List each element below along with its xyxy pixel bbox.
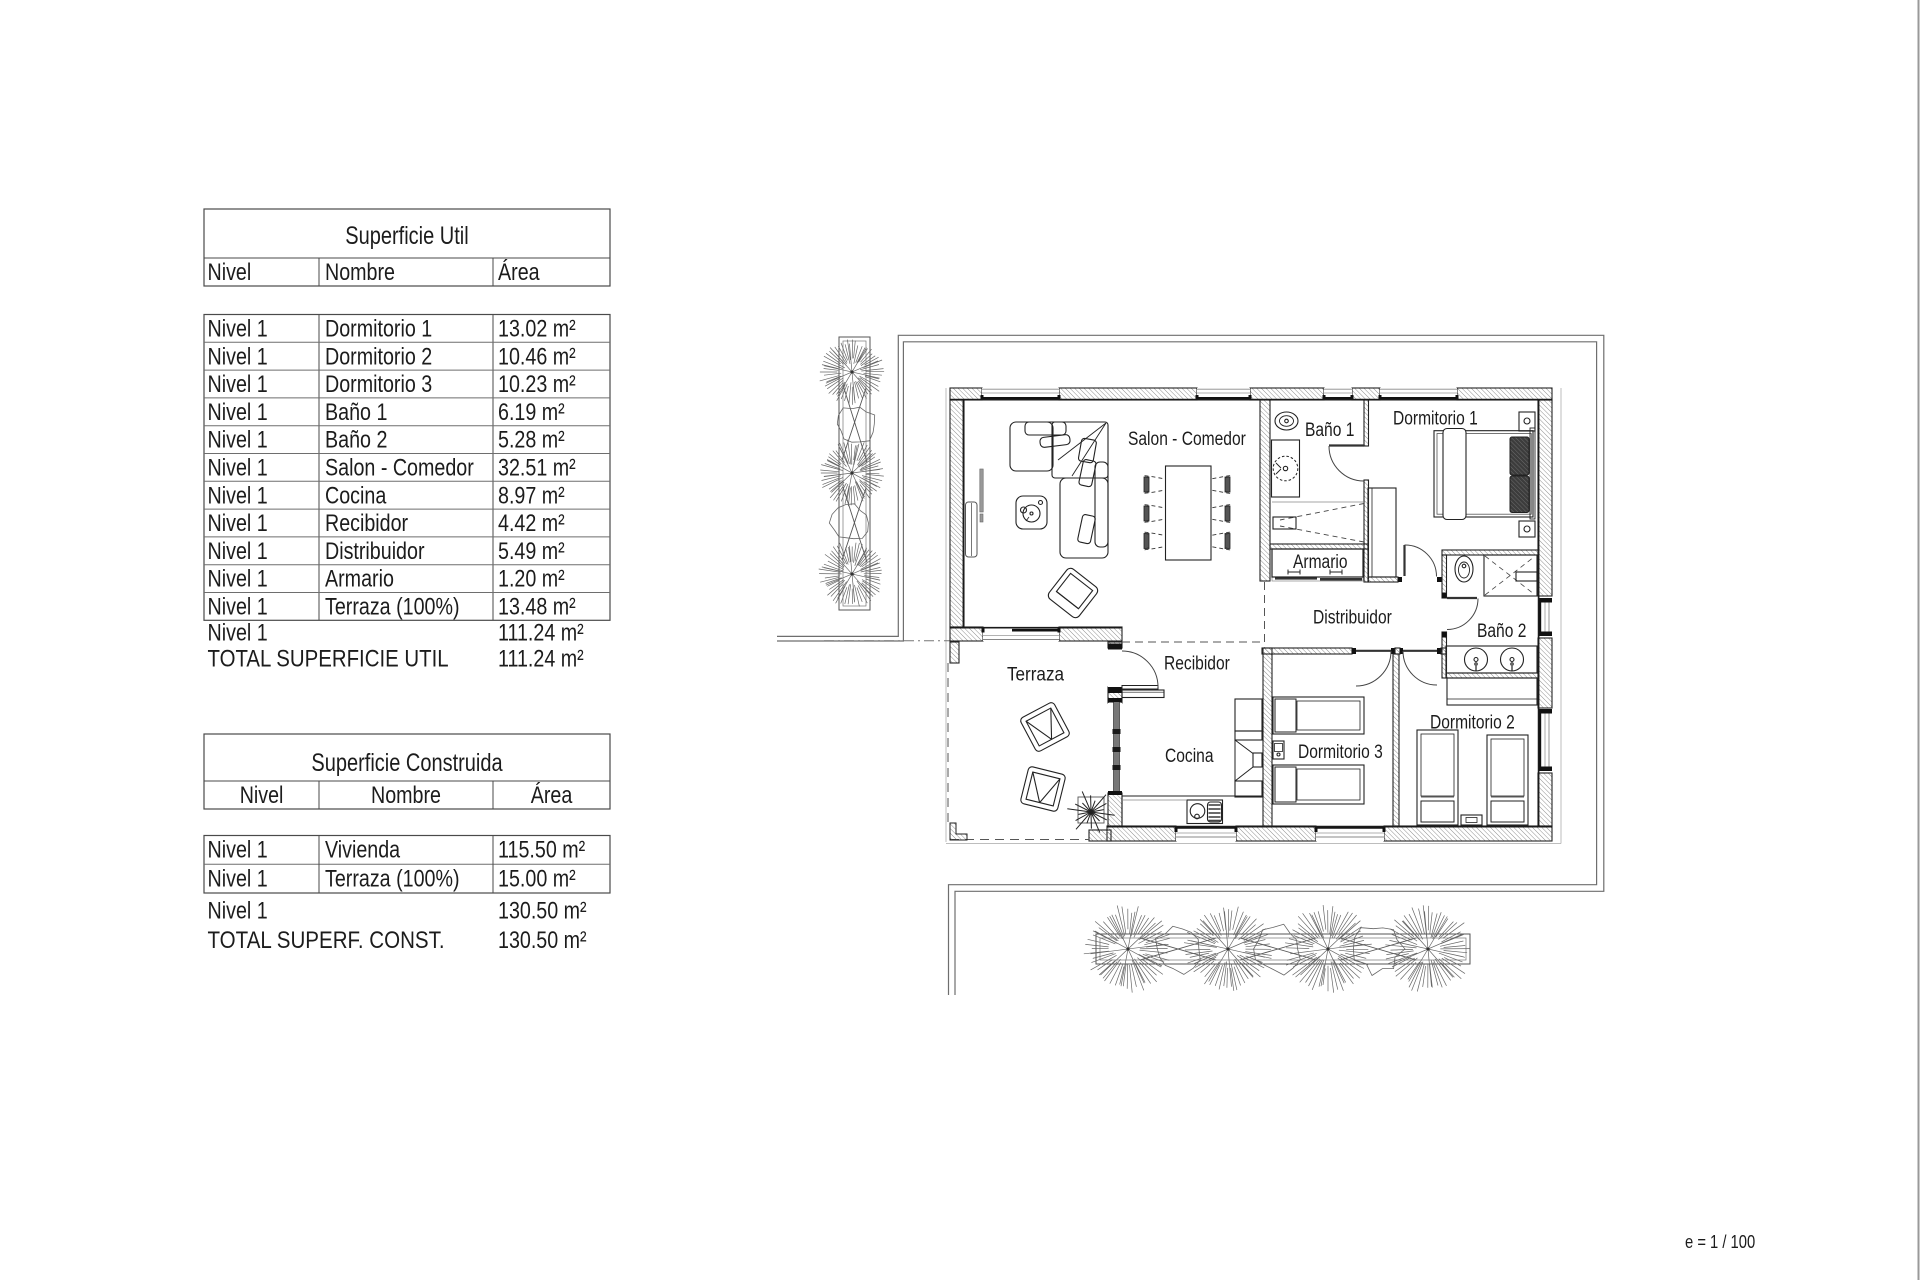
svg-text:13.02 m²: 13.02 m²: [498, 316, 576, 343]
svg-text:Nivel 1: Nivel 1: [208, 620, 268, 647]
svg-text:Salon - Comedor: Salon - Comedor: [1128, 429, 1246, 450]
svg-text:Superficie Util: Superficie Util: [345, 222, 468, 250]
svg-text:Baño 2: Baño 2: [325, 427, 387, 454]
svg-text:TOTAL SUPERF. CONST.: TOTAL SUPERF. CONST.: [208, 927, 445, 954]
svg-text:Área: Área: [531, 782, 573, 809]
svg-text:10.46 m²: 10.46 m²: [498, 343, 576, 370]
svg-text:Nivel 1: Nivel 1: [208, 455, 268, 482]
svg-text:Terraza (100%): Terraza (100%): [325, 865, 460, 892]
svg-text:111.24 m²: 111.24 m²: [498, 620, 584, 647]
svg-text:Vivienda: Vivienda: [325, 837, 401, 864]
svg-text:Dormitorio 3: Dormitorio 3: [1298, 742, 1383, 763]
svg-text:Recibidor: Recibidor: [325, 510, 408, 537]
svg-text:Distribuidor: Distribuidor: [325, 538, 425, 565]
svg-text:Armario: Armario: [325, 566, 394, 593]
svg-text:Nivel 1: Nivel 1: [208, 566, 268, 593]
svg-text:Dormitorio 1: Dormitorio 1: [1393, 409, 1478, 430]
svg-text:Nivel 1: Nivel 1: [208, 837, 268, 864]
svg-text:e = 1 / 100: e = 1 / 100: [1685, 1232, 1755, 1252]
svg-text:Nivel 1: Nivel 1: [208, 482, 268, 509]
svg-text:Dormitorio 2: Dormitorio 2: [325, 343, 432, 370]
svg-text:Nivel 1: Nivel 1: [208, 898, 268, 925]
svg-text:Distribuidor: Distribuidor: [1313, 608, 1392, 629]
svg-text:111.24 m²: 111.24 m²: [498, 646, 584, 673]
svg-text:Nivel 1: Nivel 1: [208, 594, 268, 621]
svg-text:Cocina: Cocina: [1165, 746, 1214, 767]
svg-text:115.50 m²: 115.50 m²: [498, 837, 585, 864]
svg-text:Nombre: Nombre: [371, 782, 441, 809]
svg-text:TOTAL SUPERFICIE UTIL: TOTAL SUPERFICIE UTIL: [208, 646, 449, 673]
svg-text:Nivel: Nivel: [208, 259, 252, 286]
svg-text:Nivel 1: Nivel 1: [208, 399, 268, 426]
svg-text:Recibidor: Recibidor: [1164, 654, 1230, 675]
svg-text:Nivel: Nivel: [240, 782, 284, 809]
svg-text:6.19 m²: 6.19 m²: [498, 399, 565, 426]
svg-text:Armario: Armario: [1293, 552, 1348, 573]
svg-text:Terraza: Terraza: [1007, 665, 1064, 686]
svg-text:Nivel 1: Nivel 1: [208, 538, 268, 565]
svg-text:4.42 m²: 4.42 m²: [498, 510, 565, 537]
svg-text:Área: Área: [498, 259, 540, 286]
svg-text:Nivel 1: Nivel 1: [208, 427, 268, 454]
svg-text:Nivel 1: Nivel 1: [208, 510, 268, 537]
svg-text:130.50 m²: 130.50 m²: [498, 898, 587, 925]
svg-text:15.00 m²: 15.00 m²: [498, 865, 576, 892]
svg-text:Dormitorio 3: Dormitorio 3: [325, 371, 432, 398]
svg-text:Baño 2: Baño 2: [1477, 621, 1526, 642]
svg-text:130.50 m²: 130.50 m²: [498, 927, 587, 954]
svg-text:Cocina: Cocina: [325, 482, 387, 509]
svg-text:Nivel 1: Nivel 1: [208, 865, 268, 892]
svg-text:5.28 m²: 5.28 m²: [498, 427, 565, 454]
svg-text:32.51 m²: 32.51 m²: [498, 455, 576, 482]
svg-text:13.48 m²: 13.48 m²: [498, 594, 576, 621]
svg-text:Nivel 1: Nivel 1: [208, 343, 268, 370]
svg-text:Nombre: Nombre: [325, 259, 395, 286]
svg-text:Terraza (100%): Terraza (100%): [325, 594, 460, 621]
svg-text:5.49 m²: 5.49 m²: [498, 538, 565, 565]
svg-text:Dormitorio 1: Dormitorio 1: [325, 316, 432, 343]
svg-text:10.23 m²: 10.23 m²: [498, 371, 576, 398]
svg-text:Baño 1: Baño 1: [325, 399, 387, 426]
svg-text:Nivel 1: Nivel 1: [208, 371, 268, 398]
svg-text:Salon - Comedor: Salon - Comedor: [325, 455, 474, 482]
svg-text:Superficie Construida: Superficie Construida: [311, 749, 502, 777]
svg-text:8.97 m²: 8.97 m²: [498, 482, 565, 509]
svg-text:1.20 m²: 1.20 m²: [498, 566, 565, 593]
svg-text:Baño 1: Baño 1: [1305, 420, 1354, 441]
svg-text:Nivel 1: Nivel 1: [208, 316, 268, 343]
